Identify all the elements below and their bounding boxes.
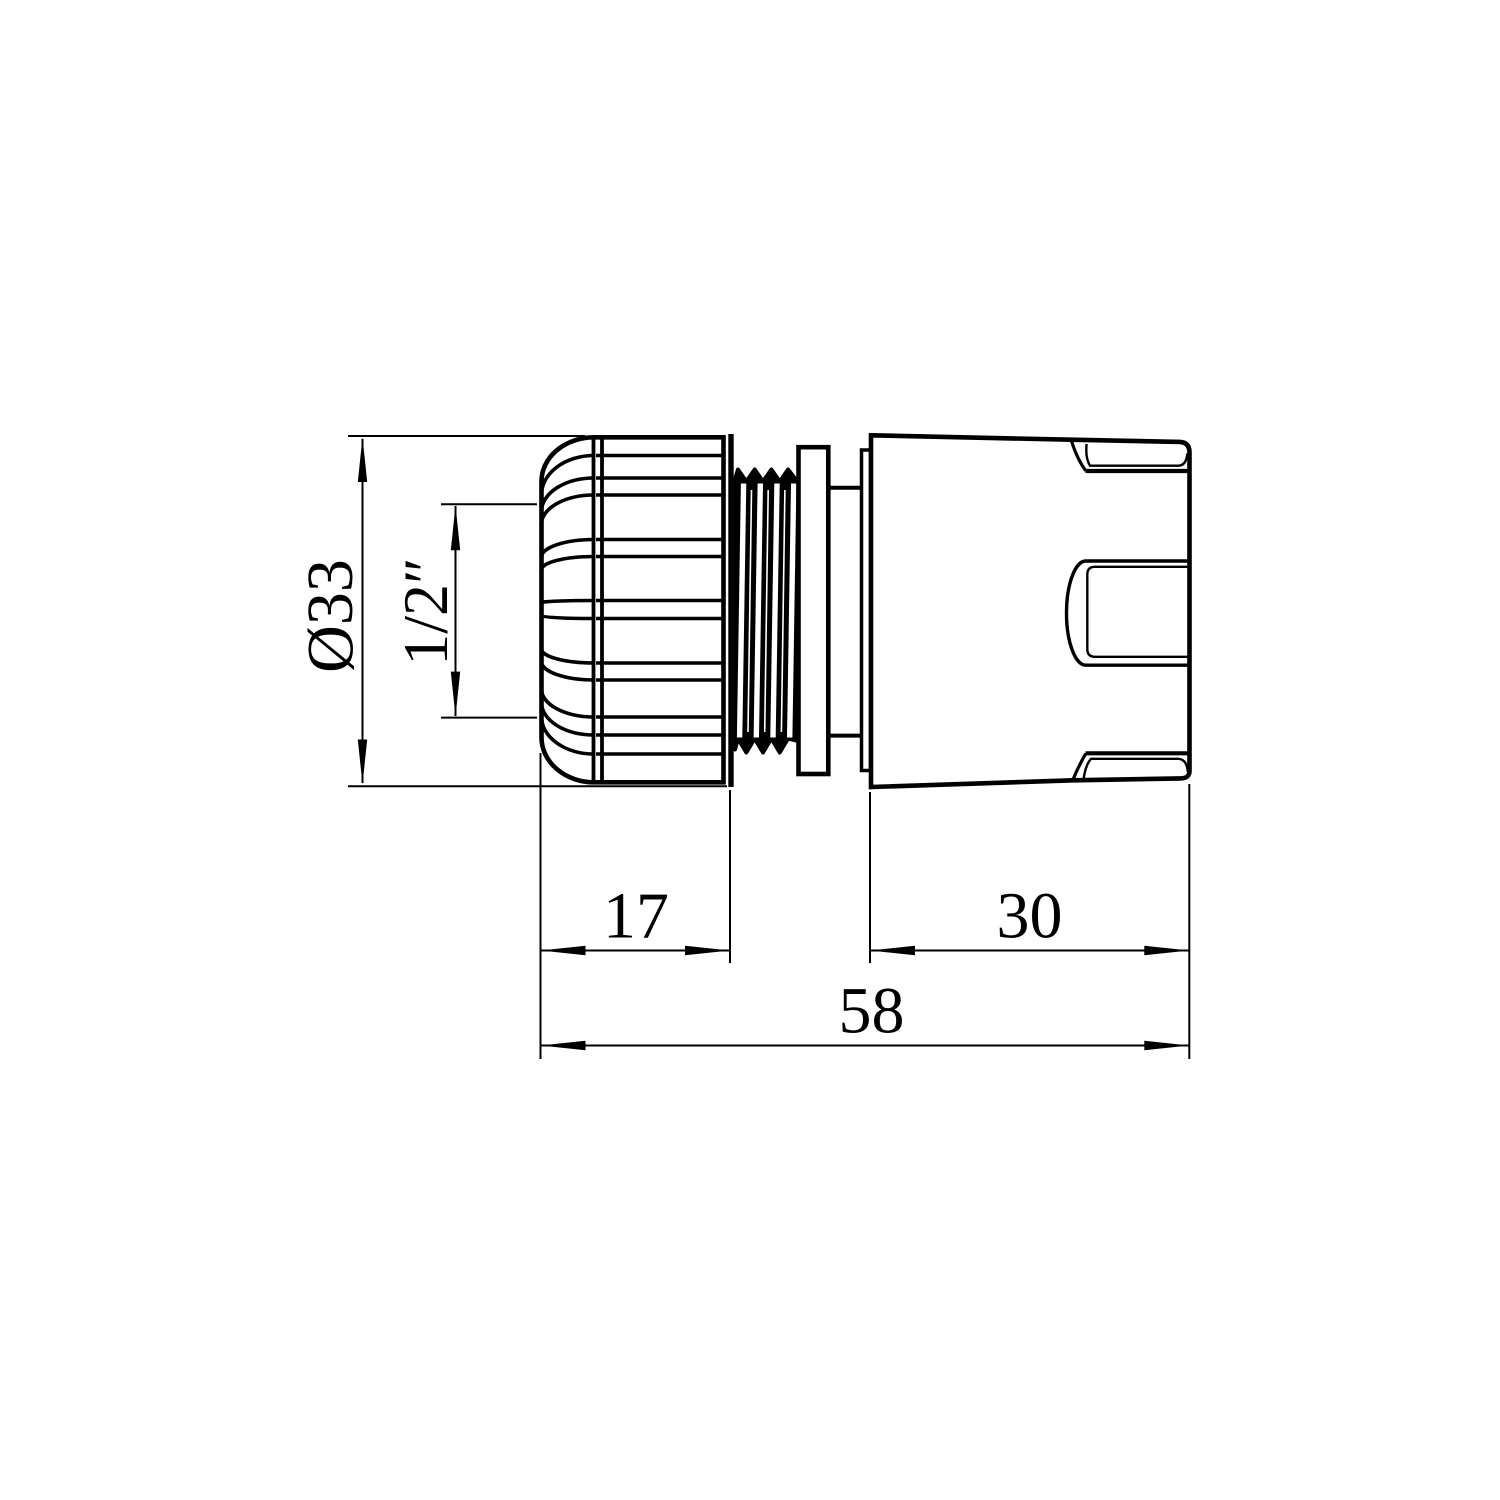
svg-text:Ø33: Ø33 — [294, 559, 367, 673]
svg-text:30: 30 — [997, 880, 1063, 953]
svg-text:17: 17 — [603, 880, 669, 953]
svg-text:1/2″: 1/2″ — [390, 557, 461, 665]
svg-text:58: 58 — [839, 975, 905, 1048]
